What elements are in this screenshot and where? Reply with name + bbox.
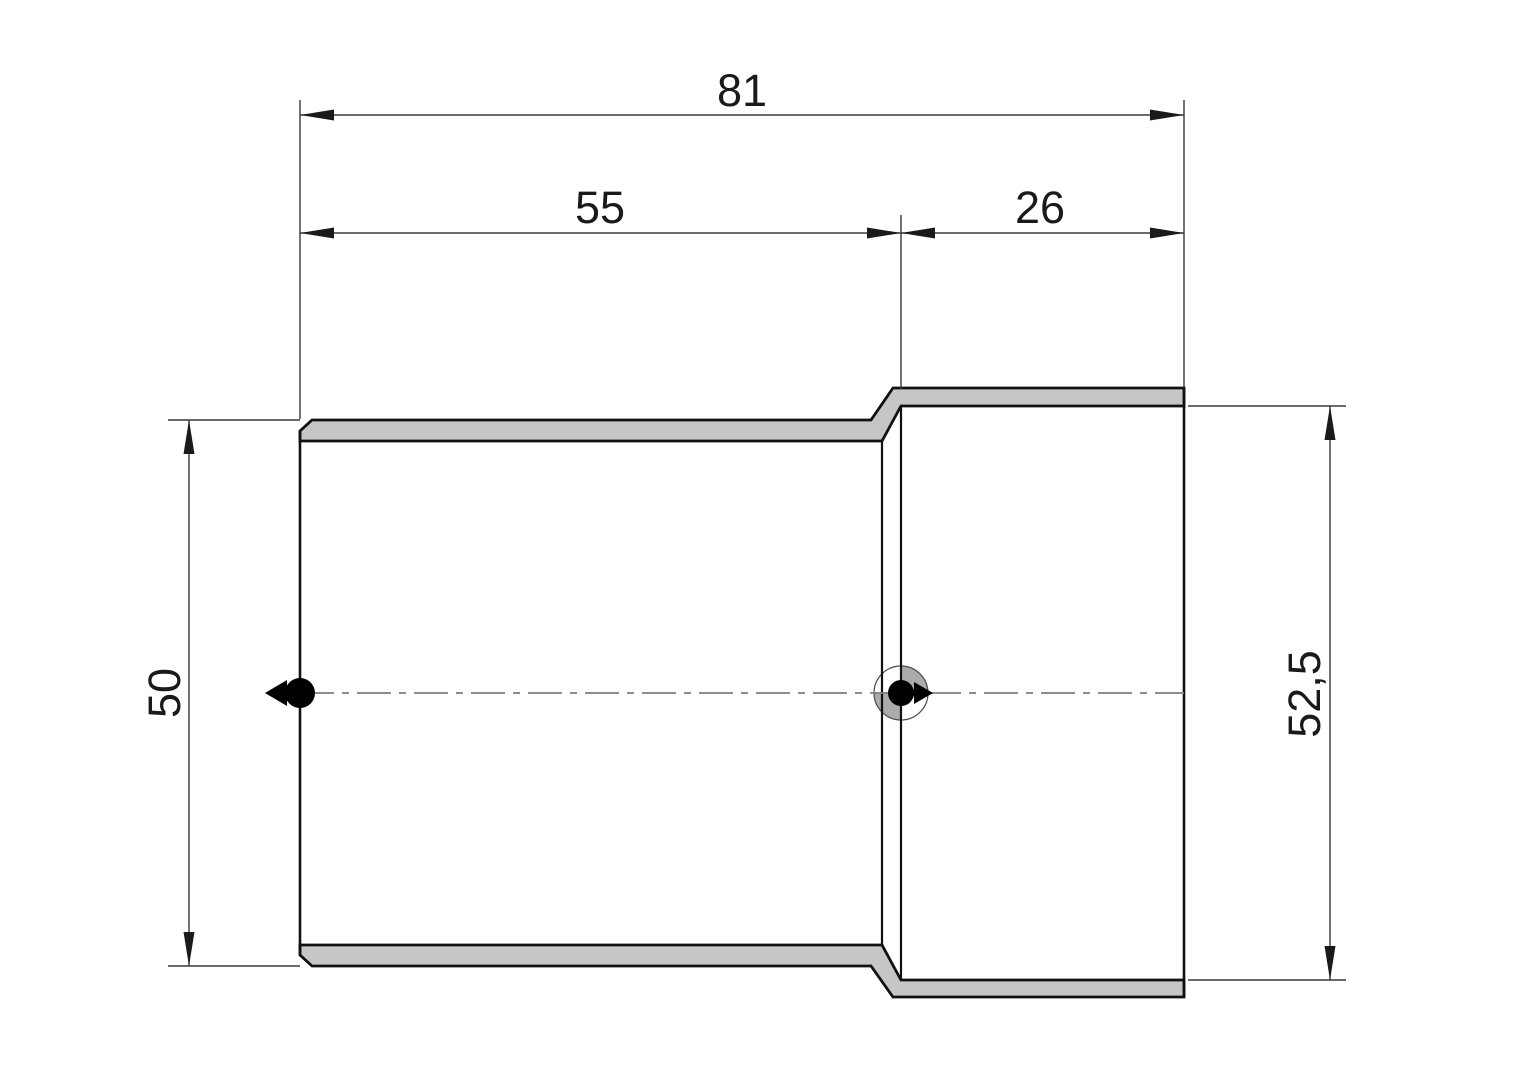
- dimension-socket-bore: 52,5: [1188, 406, 1346, 980]
- dimension-label-50: 50: [139, 668, 190, 718]
- left-end-connection-marker: [265, 678, 315, 708]
- top-wall-section: [300, 388, 1184, 441]
- arrowhead-left: [300, 228, 334, 239]
- pipe-fitting-section-drawing: 81 55 26 50: [0, 0, 1528, 1080]
- dimension-body-length: 55: [300, 182, 901, 389]
- dimension-socket-depth: 26: [901, 182, 1184, 239]
- arrowhead-top: [1325, 406, 1336, 440]
- dimension-label-52-5: 52,5: [1279, 650, 1330, 738]
- arrowhead-right: [867, 228, 901, 239]
- arrowhead-bottom: [1325, 946, 1336, 980]
- dimension-label-26: 26: [1015, 182, 1065, 233]
- arrowhead-top: [184, 420, 195, 454]
- arrowhead-left: [300, 110, 334, 121]
- bottom-wall-section: [300, 945, 1184, 997]
- arrowhead-right: [1150, 110, 1184, 121]
- arrowhead-right: [1150, 228, 1184, 239]
- shoulder-connection-dot: [888, 680, 914, 706]
- dimension-label-55: 55: [575, 182, 625, 233]
- arrowhead-bottom: [184, 932, 195, 966]
- left-connection-dot: [285, 678, 315, 708]
- arrowhead-left: [901, 228, 935, 239]
- dimension-overall-length: 81: [300, 65, 1184, 419]
- technical-drawing-canvas: 81 55 26 50: [0, 0, 1528, 1080]
- dimension-label-81: 81: [717, 65, 767, 116]
